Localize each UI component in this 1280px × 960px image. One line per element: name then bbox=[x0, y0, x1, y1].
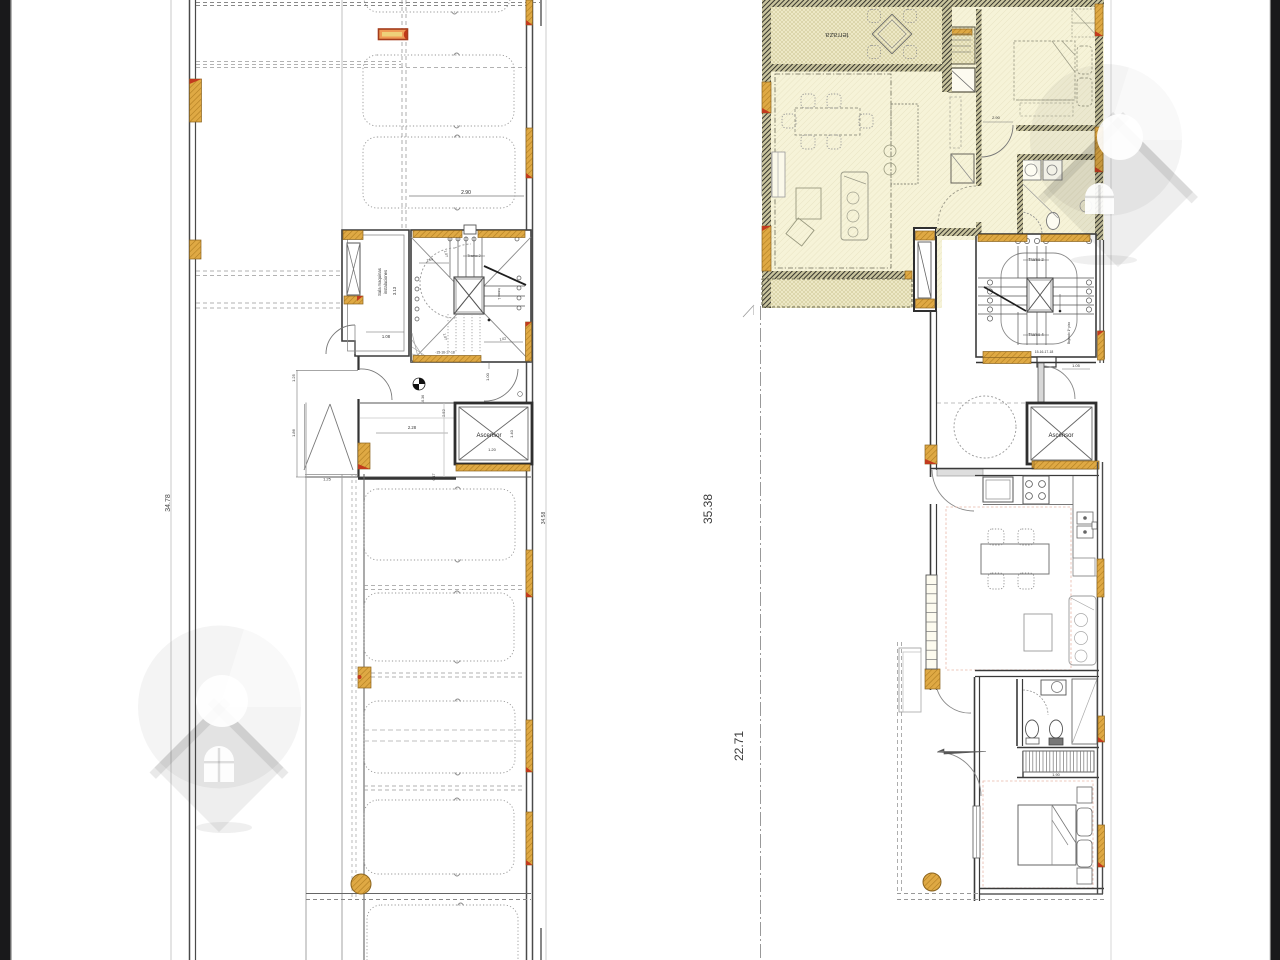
svg-text:Ascensor: Ascensor bbox=[476, 433, 501, 439]
svg-text:Bajando 1º piso: Bajando 1º piso bbox=[1067, 322, 1071, 344]
svg-text:2.52: 2.52 bbox=[441, 408, 446, 417]
svg-text:1.40: 1.40 bbox=[509, 429, 514, 438]
svg-text:15-16-17-18: 15-16-17-18 bbox=[1035, 350, 1054, 354]
svg-text:2.90: 2.90 bbox=[992, 115, 1001, 120]
svg-text:Tramo 4: Tramo 4 bbox=[1028, 332, 1044, 337]
svg-text:34.58: 34.58 bbox=[541, 512, 547, 525]
svg-text:1.25: 1.25 bbox=[323, 477, 332, 482]
svg-text:tramo 1: tramo 1 bbox=[497, 288, 501, 300]
svg-text:instalaciones: instalaciones bbox=[383, 270, 388, 294]
svg-text:Ascensor: Ascensor bbox=[1048, 433, 1073, 439]
svg-text:-0.36: -0.36 bbox=[421, 395, 425, 403]
svg-text:1.90: 1.90 bbox=[1052, 773, 1059, 777]
svg-text:Tramo 2: Tramo 2 bbox=[1028, 257, 1044, 262]
svg-text:terraza: terraza bbox=[825, 31, 849, 40]
svg-text:1.05: 1.05 bbox=[1072, 363, 1081, 368]
svg-text:34.78: 34.78 bbox=[165, 494, 172, 512]
svg-text:22.71: 22.71 bbox=[732, 731, 746, 761]
svg-text:35.38: 35.38 bbox=[701, 494, 715, 524]
svg-text:1.20: 1.20 bbox=[488, 447, 497, 452]
svg-text:2.28: 2.28 bbox=[408, 425, 417, 430]
svg-text:1.00: 1.00 bbox=[485, 372, 490, 381]
svg-text:1.86: 1.86 bbox=[291, 428, 296, 437]
svg-text:0.17: 0.17 bbox=[432, 474, 436, 481]
svg-text:Sala maquinas: Sala maquinas bbox=[377, 268, 382, 296]
svg-text:1.25: 1.25 bbox=[291, 373, 296, 382]
svg-text:3.13: 3.13 bbox=[392, 286, 397, 295]
svg-text:2.90: 2.90 bbox=[461, 190, 471, 196]
svg-text:-15-16-17-18: -15-16-17-18 bbox=[435, 351, 455, 355]
svg-text:1.08: 1.08 bbox=[382, 334, 391, 339]
